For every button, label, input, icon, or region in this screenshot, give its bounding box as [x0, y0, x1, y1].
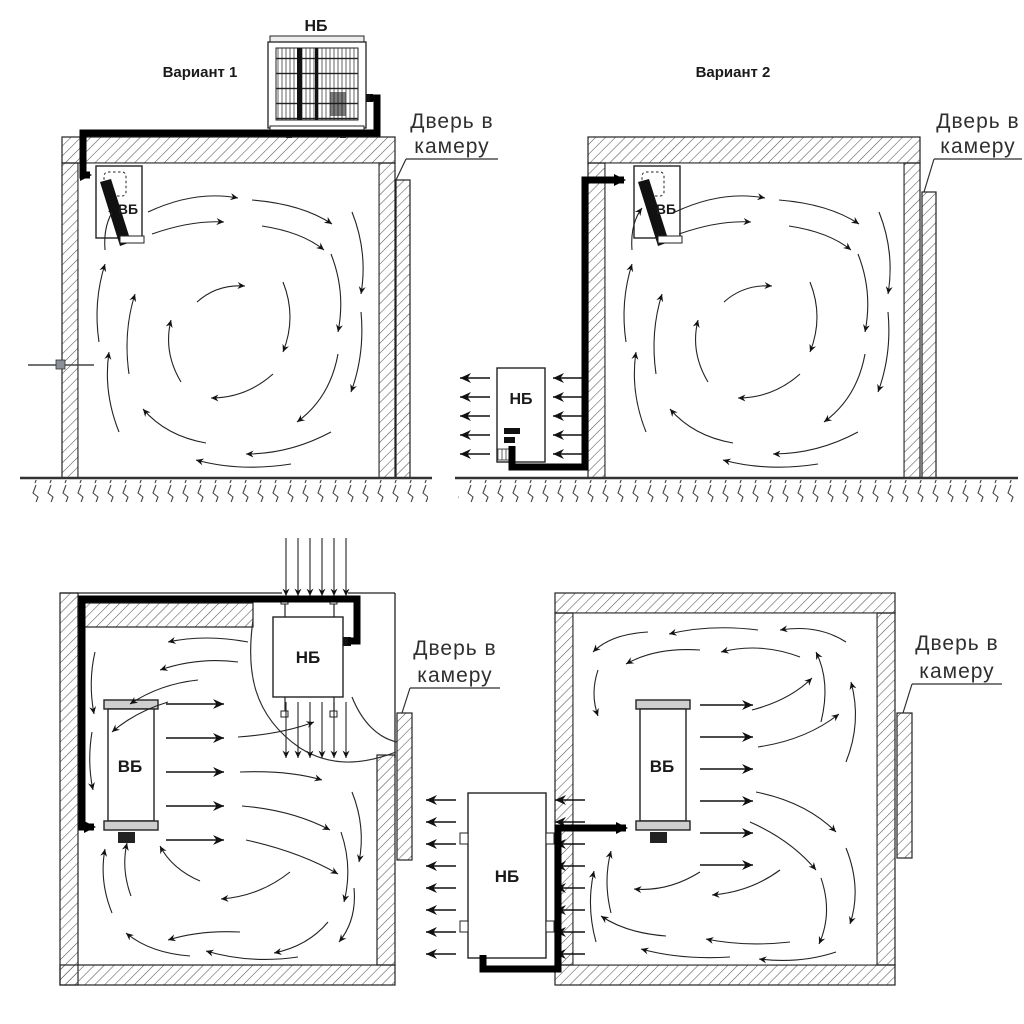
- svg-text:Дверь в: Дверь в: [915, 632, 998, 655]
- door-label: Дверь в камеру: [402, 637, 500, 713]
- outdoor-unit-nb: НБ: [273, 598, 351, 717]
- unit-foot: [118, 832, 135, 843]
- door: [897, 713, 912, 858]
- door-label: Дверь в камеру: [903, 632, 1002, 713]
- outdoor-unit-label: НБ: [296, 648, 321, 667]
- outdoor-unit-nb: НБ: [268, 18, 373, 138]
- indoor-unit-discharge-arrows: [166, 704, 224, 840]
- door-label: Дверь в камеру: [924, 110, 1022, 192]
- indoor-unit-label: ВБ: [118, 757, 143, 776]
- door: [922, 192, 936, 478]
- diagram-svg: Вариант 1 НБ: [0, 0, 1024, 1024]
- outdoor-unit-label: НБ: [509, 391, 532, 408]
- chamber-interior: [573, 613, 877, 965]
- indoor-unit-label: ВБ: [650, 757, 675, 776]
- door: [396, 180, 410, 478]
- ceiling-wall: [78, 603, 253, 627]
- indoor-unit-label: ВБ: [118, 201, 138, 217]
- ground: [455, 478, 1018, 502]
- roof-wall: [62, 137, 395, 163]
- svg-text:Дверь в: Дверь в: [410, 110, 493, 133]
- svg-text:Дверь в: Дверь в: [413, 637, 496, 660]
- panel-variant-2: Вариант 2 НБ: [455, 64, 1022, 502]
- leader-line: [396, 159, 406, 180]
- bottom-wall: [555, 965, 895, 985]
- outdoor-unit-nb: НБ: [497, 368, 545, 462]
- panel-variant-3: НБ ВБ: [60, 538, 500, 985]
- right-wall: [904, 163, 920, 478]
- panel-variant-4: НБ: [426, 593, 1002, 985]
- outdoor-unit-outlet-arrows: [286, 702, 346, 758]
- svg-text:камеру: камеру: [919, 660, 994, 683]
- svg-text:Дверь в: Дверь в: [936, 110, 1019, 133]
- roof-wall: [555, 593, 895, 613]
- panel-title: Вариант 1: [163, 64, 238, 81]
- leader-line: [903, 684, 912, 713]
- panel-title: Вариант 2: [696, 64, 771, 81]
- bottom-wall: [60, 965, 395, 985]
- left-wall: [60, 593, 78, 985]
- door: [397, 713, 412, 860]
- left-wall: [588, 163, 605, 478]
- outdoor-unit-nb: НБ: [460, 793, 554, 958]
- indoor-unit-vb: ВБ: [96, 166, 144, 246]
- svg-text:камеру: камеру: [417, 664, 492, 687]
- panel-variant-1: Вариант 1 НБ: [20, 18, 498, 502]
- door-label: Дверь в камеру: [396, 110, 498, 180]
- outdoor-unit-label: НБ: [495, 867, 520, 886]
- chamber-walls: [555, 593, 895, 985]
- leader-line: [402, 688, 410, 713]
- roof-wall: [588, 137, 920, 163]
- svg-text:камеру: камеру: [414, 135, 489, 158]
- unit-foot: [650, 832, 667, 843]
- indoor-unit-vb: ВБ: [634, 166, 682, 246]
- leader-line: [924, 159, 934, 192]
- left-wall: [62, 163, 78, 478]
- svg-text:камеру: камеру: [940, 135, 1015, 158]
- right-wall: [379, 163, 395, 478]
- right-wall: [877, 613, 895, 965]
- outside-air-inlet-arrows: [286, 538, 346, 596]
- indoor-unit-vb: ВБ: [104, 700, 158, 843]
- outdoor-unit-label: НБ: [304, 18, 327, 35]
- compressor-icon: [504, 428, 520, 434]
- hvac-installation-diagram: Вариант 1 НБ: [0, 0, 1024, 1024]
- ground: [20, 478, 432, 502]
- right-wall: [377, 755, 395, 965]
- indoor-unit-vb: ВБ: [636, 700, 690, 843]
- indoor-unit-label: ВБ: [656, 201, 676, 217]
